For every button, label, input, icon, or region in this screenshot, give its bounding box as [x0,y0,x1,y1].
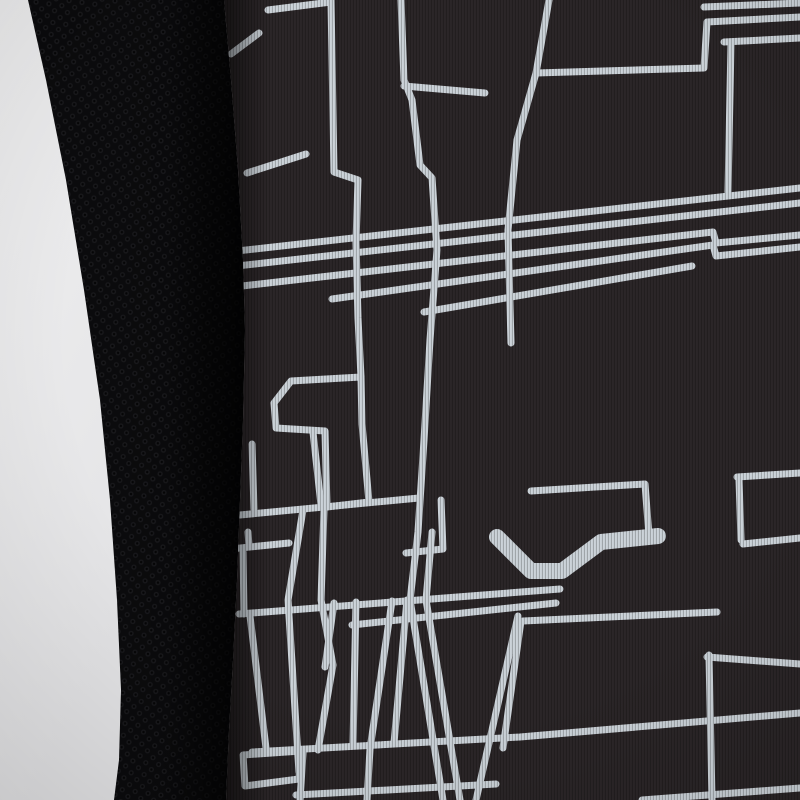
product-photo-stage [0,0,800,800]
photo-vignette [0,0,800,800]
garment-closeup-photo [0,0,800,800]
